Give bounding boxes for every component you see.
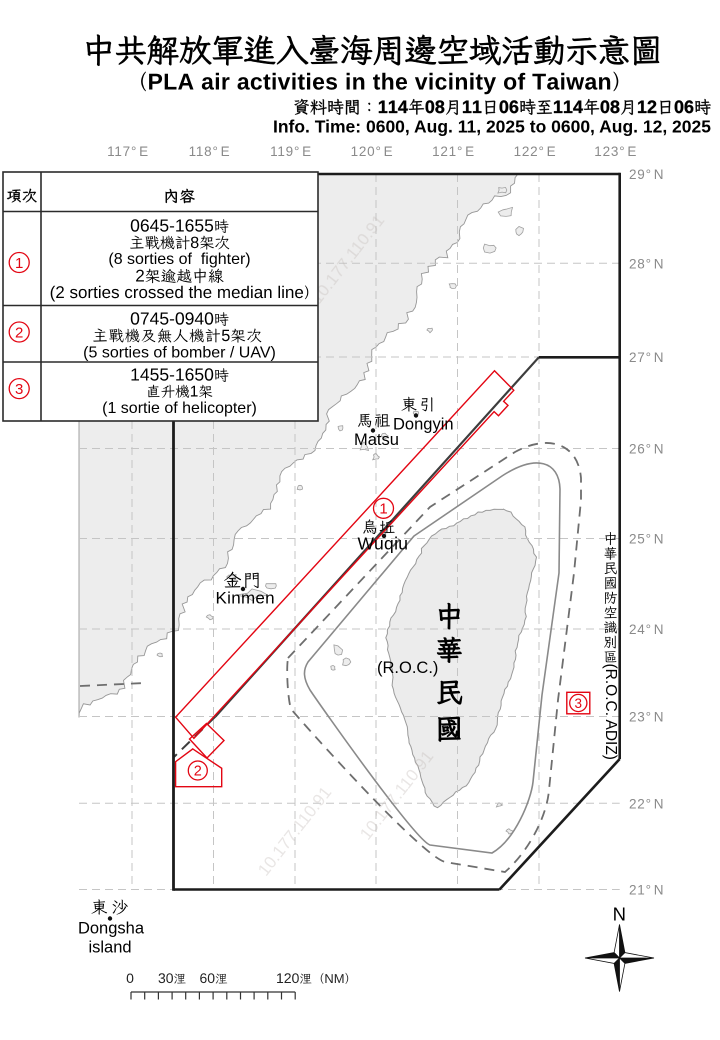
- svg-text:22° N: 22° N: [629, 796, 664, 811]
- svg-text:123° E: 123° E: [594, 144, 637, 159]
- svg-text:island: island: [88, 939, 131, 957]
- svg-text:Kinmen: Kinmen: [216, 589, 275, 608]
- svg-text:118° E: 118° E: [189, 144, 231, 159]
- svg-text:23° N: 23° N: [629, 710, 664, 725]
- svg-text:2: 2: [194, 764, 202, 780]
- svg-text:1: 1: [379, 501, 387, 518]
- svg-text:(5 sorties of bomber / UAV): (5 sorties of bomber / UAV): [83, 345, 276, 362]
- svg-text:(1 sortie of helicopter): (1 sortie of helicopter): [102, 400, 257, 417]
- svg-text:(R.O.C. ADIZ): (R.O.C. ADIZ): [602, 664, 619, 760]
- svg-text:122° E: 122° E: [514, 144, 557, 159]
- svg-text:24° N: 24° N: [629, 622, 664, 637]
- svg-text:Dongyin: Dongyin: [393, 416, 454, 434]
- svg-text:1: 1: [15, 255, 23, 272]
- svg-text:0: 0: [126, 970, 134, 986]
- svg-text:25° N: 25° N: [629, 532, 664, 547]
- svg-text:121° E: 121° E: [432, 144, 475, 159]
- svg-text:120° E: 120° E: [351, 144, 394, 159]
- svg-text:3: 3: [15, 381, 23, 398]
- svg-text:117° E: 117° E: [107, 144, 149, 159]
- svg-text:(R.O.C.): (R.O.C.): [377, 659, 438, 677]
- svg-text:Dongsha: Dongsha: [78, 920, 145, 938]
- svg-text:29° N: 29° N: [629, 167, 664, 182]
- svg-text:Info. Time: 0600, Aug. 11, 202: Info. Time: 0600, Aug. 11, 2025 to 0600,…: [273, 117, 711, 137]
- svg-text:3: 3: [575, 696, 583, 711]
- svg-text:27° N: 27° N: [629, 350, 664, 365]
- svg-text:2: 2: [15, 324, 23, 341]
- svg-text:(8 sorties of fighter): (8 sorties of fighter): [108, 251, 250, 268]
- svg-text:28° N: 28° N: [629, 256, 664, 271]
- svg-text:N: N: [613, 904, 626, 925]
- svg-text:Matsu: Matsu: [354, 431, 399, 449]
- svg-text:Wuqiu: Wuqiu: [358, 534, 409, 554]
- svg-text:26° N: 26° N: [629, 442, 664, 457]
- svg-text:119° E: 119° E: [270, 144, 312, 159]
- svg-text:21° N: 21° N: [629, 883, 664, 898]
